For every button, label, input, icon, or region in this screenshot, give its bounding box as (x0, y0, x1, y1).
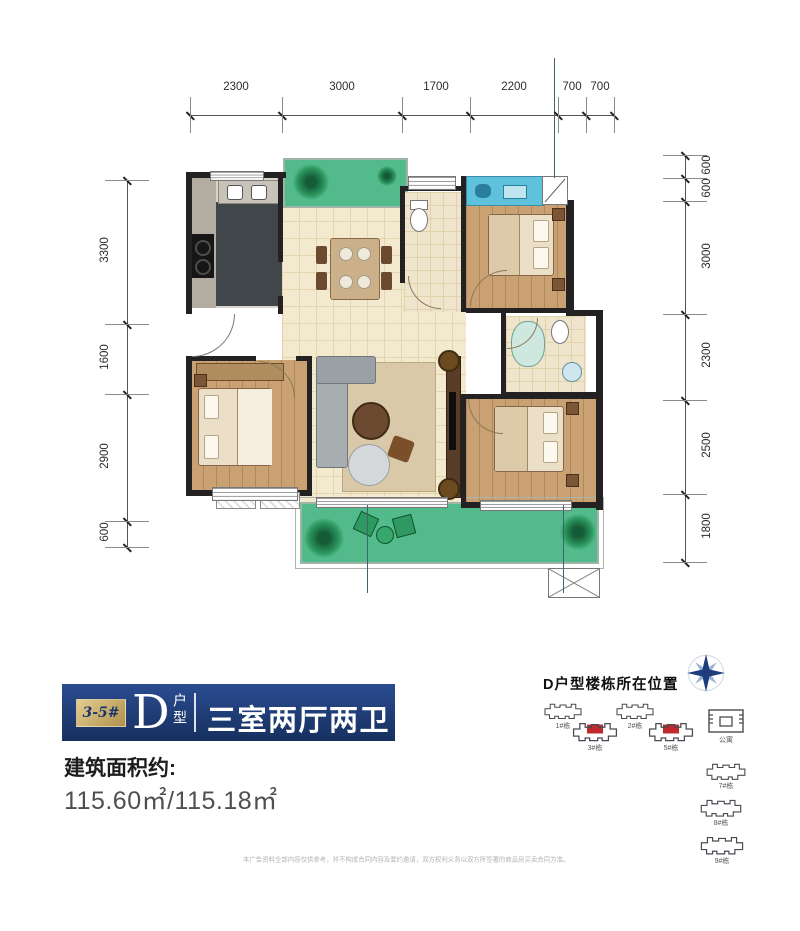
dim-label: 2500 (701, 415, 713, 475)
building-number-badge: 3-5# (76, 699, 126, 727)
coffee-table (352, 402, 390, 440)
dim-label: 2200 (470, 81, 558, 93)
stove (190, 234, 214, 278)
disclaimer-text: 本广告资料全部内容仅供参考，并不构成合同内容及要约邀请，双方权利义务以双方所签署… (243, 855, 579, 864)
dining-chair (316, 246, 327, 264)
dining-chair (316, 272, 327, 290)
floorplan-flyer: 2300300017002200700700 330016002900600 6… (0, 0, 800, 931)
dim-label: 700 (558, 81, 586, 93)
plant-icon (304, 518, 344, 558)
kitchen-sink (218, 180, 282, 204)
building-icon-3#栋: 3#栋 (570, 721, 620, 753)
nightstand (566, 474, 579, 487)
dim-label: 3000 (701, 226, 713, 286)
building-label: 9#栋 (698, 856, 746, 866)
unit-letter: D (132, 684, 170, 741)
kitchen-dark-floor (216, 202, 282, 306)
compass-icon (686, 653, 726, 693)
entry-door-arc (192, 314, 235, 357)
building-label: 7#栋 (704, 781, 748, 791)
area-value: 115.60㎡/115.18㎡ (64, 781, 278, 817)
dim-label: 1600 (99, 327, 111, 387)
bedroom2-bed (198, 388, 272, 466)
divider (194, 693, 196, 732)
nightstand (566, 402, 579, 415)
building-icon-5#栋: 5#栋 (646, 721, 696, 753)
dim-label: 2900 (99, 426, 111, 486)
layout-title: 三室两厅两卫 (207, 697, 390, 739)
unit-type-label: 户型 (170, 693, 190, 727)
bedroom1-bay-window (466, 176, 544, 206)
dim-label: 1800 (701, 496, 713, 556)
building-label: 5#栋 (646, 743, 696, 753)
balcony-decor (392, 514, 416, 538)
top-balcony (283, 158, 408, 208)
dim-label: 1700 (402, 81, 470, 93)
dim-label: 2300 (701, 325, 713, 385)
unit-title-bar: 3-5# D 户型 三室两厅两卫 (62, 684, 395, 741)
toilet-bowl (551, 320, 569, 344)
sofa-chaise (316, 356, 376, 384)
bottom-balcony (300, 502, 599, 564)
extension-line (563, 505, 564, 593)
dim-label: 2300 (190, 81, 282, 93)
openable-window-icon (542, 176, 568, 205)
extension-line (554, 58, 555, 178)
bedroom3-balcony-window (480, 500, 572, 511)
plant-icon (377, 166, 397, 186)
building-label: 公寓 (706, 735, 746, 745)
nightstand (552, 208, 565, 221)
tv (449, 392, 456, 450)
extension-line (367, 505, 368, 593)
dining-chair (381, 246, 392, 264)
building-label: 3#栋 (570, 743, 620, 753)
dining-chair (381, 272, 392, 290)
building-icon-公寓: 公寓 (706, 706, 746, 745)
dim-label: 700 (586, 81, 614, 93)
building-icon-7#栋: 7#栋 (704, 762, 748, 791)
area-label: 建筑面积约: (64, 752, 176, 782)
ac-platform-icon (548, 568, 600, 598)
living-balcony-door (316, 497, 448, 508)
nightstand (552, 278, 565, 291)
building-icon-9#栋: 9#栋 (698, 835, 746, 866)
kitchen-window (210, 171, 264, 181)
side-table (348, 444, 390, 486)
balcony-decor (376, 526, 394, 544)
building-icon-8#栋: 8#栋 (698, 798, 744, 828)
bedroom3-bed (494, 406, 564, 472)
plant-pot (438, 350, 460, 372)
dim-label: 600 (701, 158, 713, 218)
dim-label: 3300 (99, 220, 111, 280)
building-label: 8#栋 (698, 818, 744, 828)
dining-table (330, 238, 380, 300)
dim-label: 3000 (282, 81, 402, 93)
dim-label: 600 (99, 502, 111, 562)
bedroom1-bed (488, 214, 554, 276)
toilet-bowl (410, 208, 428, 232)
bedroom2-bay-window (212, 487, 298, 501)
floor-plan (0, 0, 800, 620)
location-heading: D户型楼栋所在位置 (543, 673, 678, 694)
sink (562, 362, 582, 382)
bath1-window (408, 176, 456, 190)
plant-icon (293, 164, 329, 200)
nightstand (194, 374, 207, 387)
plant-icon (560, 514, 596, 550)
